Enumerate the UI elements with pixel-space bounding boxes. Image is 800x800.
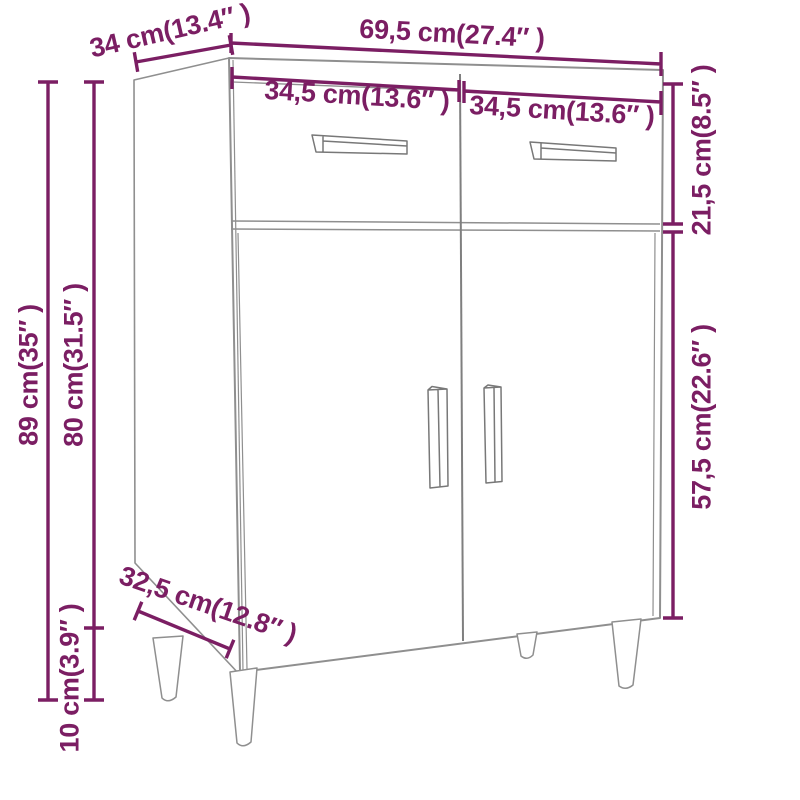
drawer-door-divider <box>231 221 660 231</box>
cabinet-drawing <box>0 0 800 800</box>
center-divider <box>460 74 463 641</box>
front-right-leg <box>612 619 641 688</box>
leg-height-dim-line <box>84 628 104 700</box>
door-section-height-dim-line <box>663 232 683 618</box>
right-drawer-handle <box>530 142 616 161</box>
total-height-label: 89 cm(35″ ) <box>14 304 45 446</box>
back-right-leg <box>517 632 537 658</box>
front-left-leg <box>230 668 257 746</box>
handles <box>312 135 616 488</box>
left-drawer-handle <box>312 135 407 154</box>
furniture-dimension-diagram: 69,5 cm(27.4″ ) 34 cm(13.4″ ) 34,5 cm(13… <box>0 0 800 800</box>
door-section-height-label: 57,5 cm(22.6″ ) <box>687 324 718 510</box>
drawer-section-height-label: 21,5 cm(8.5″ ) <box>687 65 718 236</box>
drawer-section-height-dim-line <box>663 84 683 224</box>
left-door-handle <box>428 387 448 489</box>
body-height-label: 80 cm(31.5″ ) <box>59 283 90 447</box>
right-door-handle <box>484 385 502 483</box>
leg-height-label: 10 cm(3.9″ ) <box>55 604 86 753</box>
back-left-leg <box>153 636 183 701</box>
legs <box>153 619 641 746</box>
